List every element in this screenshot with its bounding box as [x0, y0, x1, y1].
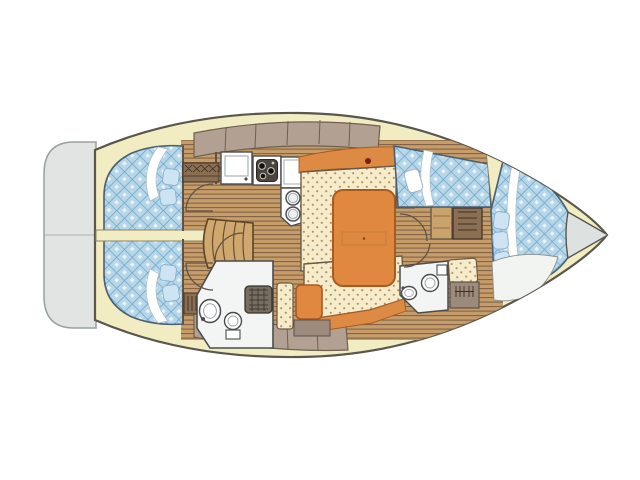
- floorplan-svg: [0, 0, 640, 480]
- nav-seat-base: [294, 320, 330, 336]
- aft-head-toilet: [225, 313, 242, 330]
- forward-head-bench: [448, 258, 479, 308]
- aft-berth-starboard-pillow-2: [159, 188, 177, 206]
- galley-stove: [253, 156, 281, 185]
- salon-table-dot: [363, 237, 366, 240]
- aft-head-bench: [277, 283, 293, 329]
- nav-seat: [296, 285, 322, 319]
- galley-sink-counter: [221, 152, 252, 184]
- forward-cabin-sole: [492, 254, 558, 300]
- engine-divider: [96, 230, 205, 241]
- nav-area: [431, 206, 482, 239]
- aft-head: [197, 261, 273, 348]
- chart-table: [431, 206, 452, 239]
- shower-grate: [245, 286, 272, 313]
- aft-berth-port-pillow-2: [159, 264, 177, 282]
- forward-head-toilet-tank: [437, 265, 447, 275]
- v-berth-pillow-2: [492, 231, 508, 249]
- forward-head-toilet: [422, 275, 439, 292]
- red-marker-dot: [365, 158, 371, 164]
- louver-locker-top: [183, 163, 225, 182]
- nav-cabinet: [453, 208, 482, 239]
- aft-head-toilet-tank: [226, 330, 240, 339]
- boat-floorplan-image: [0, 0, 640, 480]
- aft-berth-starboard-pillow-1: [162, 168, 180, 186]
- v-berth-pillow-1: [493, 211, 510, 230]
- aft-berth-port-pillow-1: [162, 284, 180, 302]
- interior: [96, 120, 608, 350]
